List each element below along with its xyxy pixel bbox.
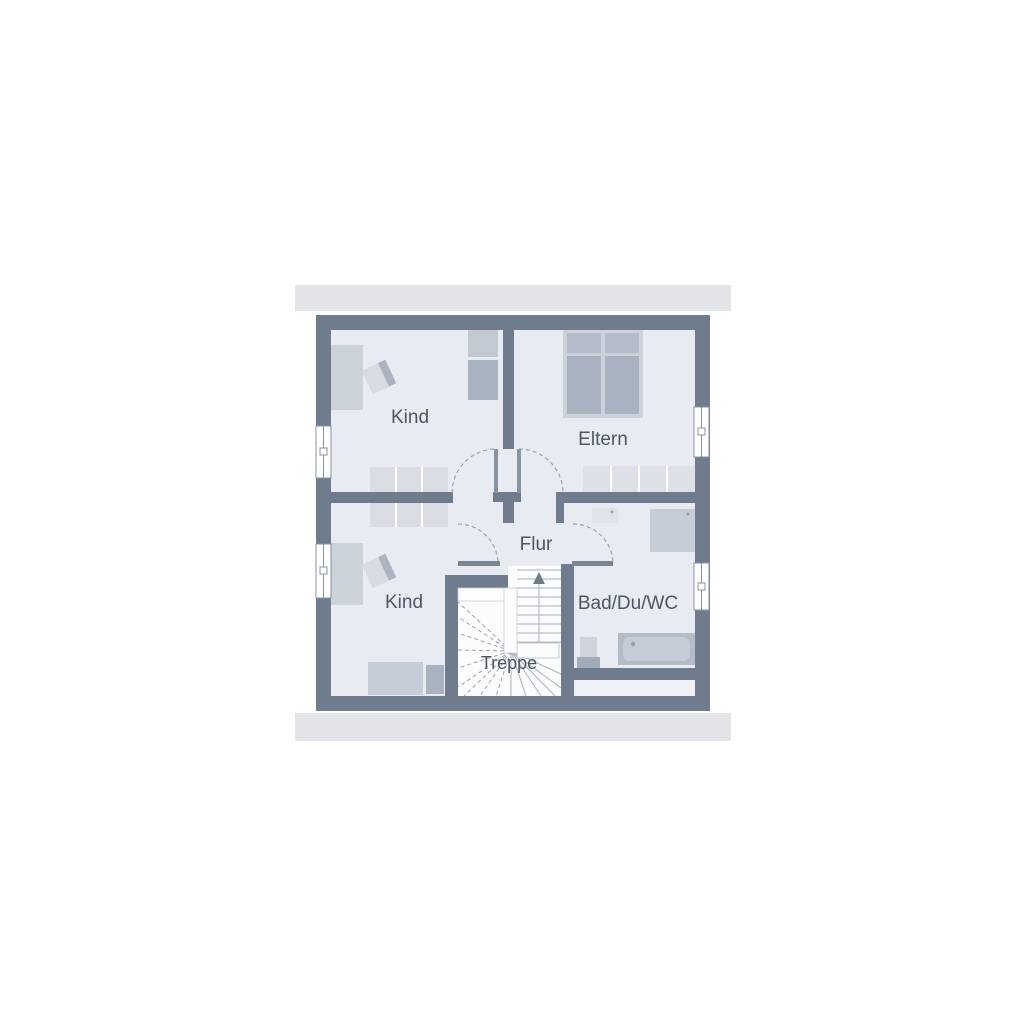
wall-stair-left [445,575,458,696]
room-label-bad: Bad/Du/WC [578,593,678,614]
door-leaf [517,449,521,493]
window-left-lower [316,544,331,598]
bed [331,543,363,605]
mattress [567,356,601,414]
room-label-flur: Flur [520,534,553,555]
wall-center-stub [503,502,514,523]
floor-plan: Kind Eltern Flur Kind Bad/Du/WC Treppe [0,0,1024,1024]
pillow [567,333,601,353]
door-leaf [494,449,498,493]
room-label-kind-top: Kind [391,407,429,428]
window-right-eltern [694,407,709,457]
door-leaf [572,561,613,566]
wc [580,637,597,657]
wall-bath-bottom [561,668,695,680]
roof-overhang-bottom [295,713,731,741]
wall-kind-divider [331,492,453,503]
wall-eltern-bottom [556,492,695,503]
sink [592,508,618,523]
room-label-kind-bottom: Kind [385,592,423,613]
wall-center-vertical [503,330,514,449]
wardrobe-top [468,330,498,357]
drain [631,642,635,646]
wall-stair-top [445,575,508,588]
bed-bottom [368,662,423,695]
bathtub-basin [623,637,690,661]
mattress [605,356,639,414]
roof-overhang-top [295,285,731,311]
bed [331,345,363,410]
wall-threshold [493,492,521,502]
wardrobe [468,360,498,400]
window-right-bad [694,563,709,610]
wardrobe [370,503,448,527]
wc-base [577,657,600,668]
knee-wall-strip [574,680,695,696]
pillow [605,333,639,353]
door-leaf [458,561,500,566]
wall-bath-stub [556,492,564,523]
room-label-eltern: Eltern [578,429,628,450]
bed-pillow [426,665,444,694]
room-label-treppe: Treppe [481,653,537,673]
window-left-upper [316,426,331,478]
sideboard [370,467,448,492]
